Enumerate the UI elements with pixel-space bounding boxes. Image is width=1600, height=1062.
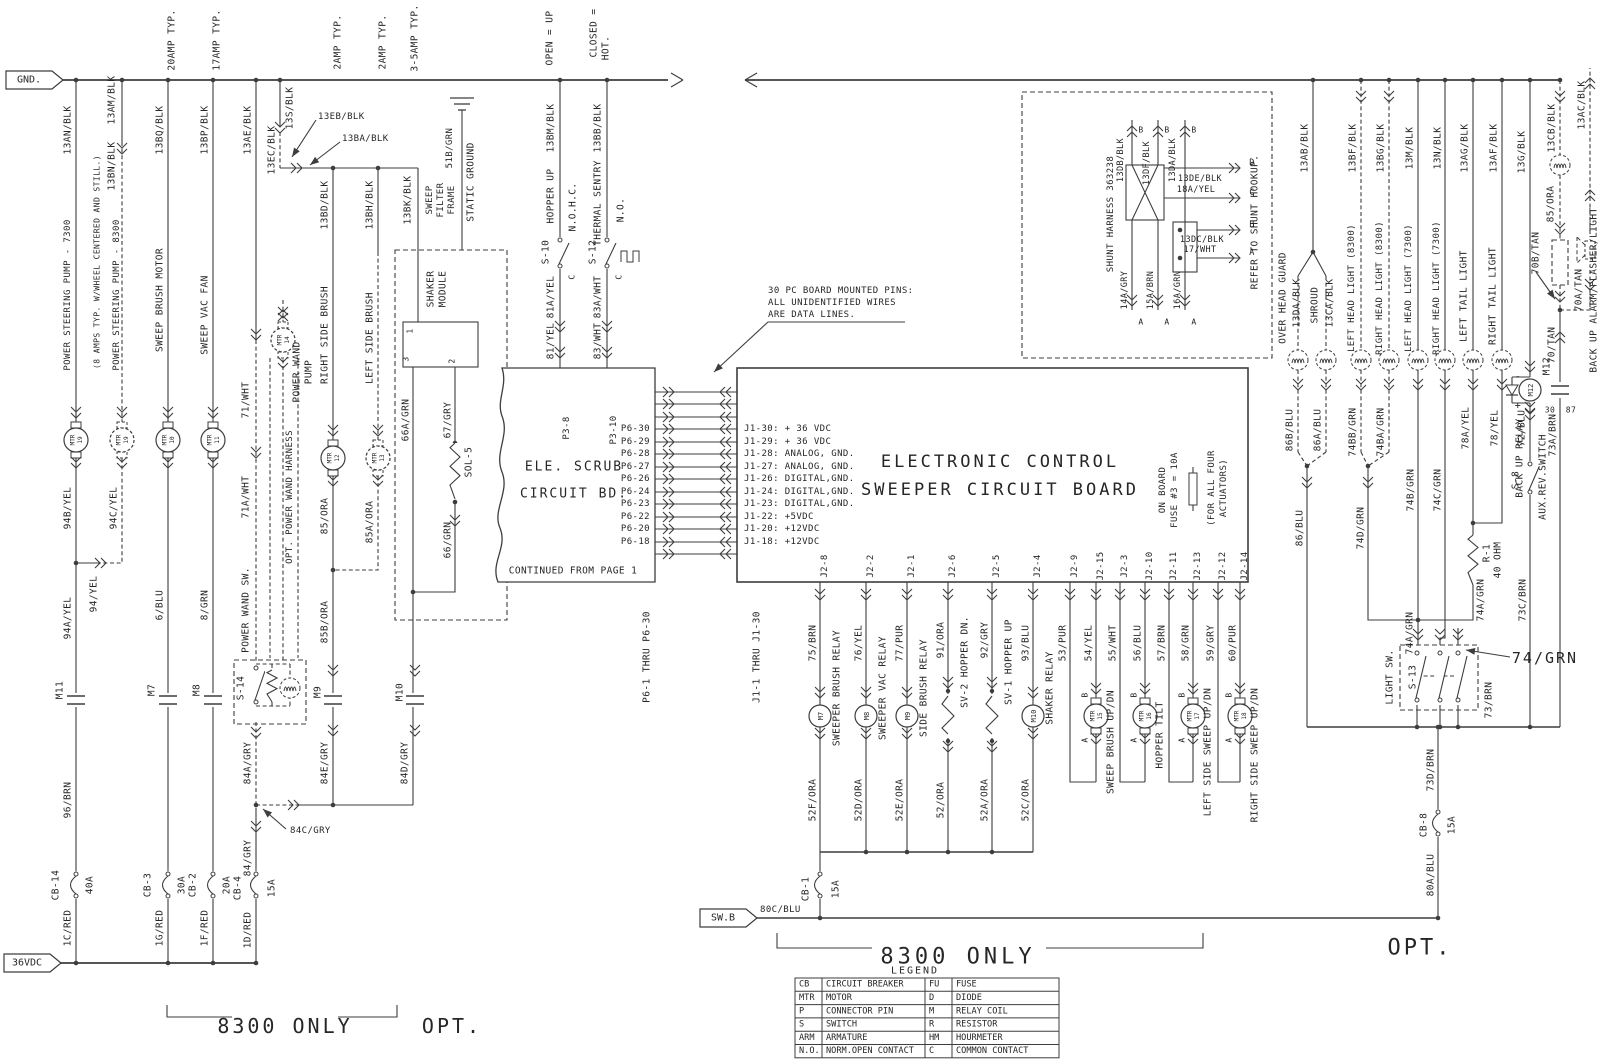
diagram-label: A	[1191, 318, 1196, 327]
diagram-label: SWEEP BRUSH MOTOR	[155, 248, 166, 352]
diagram-label: B	[1130, 692, 1139, 697]
diagram-label: 81/YEL	[546, 323, 557, 360]
diagram-label: POWER STEERING PUMP - 8300	[112, 219, 122, 370]
diagram-label: 52F/ORA	[808, 779, 819, 822]
diagram-label: 13AC/BLK	[1577, 81, 1588, 130]
diagram-label: LEFT HEAD LIGHT (7300)	[1404, 224, 1414, 352]
diagram-label: 52E/ORA	[895, 779, 906, 822]
leader-arrow-icon	[310, 157, 319, 165]
bus-arrow-icon	[671, 73, 683, 80]
diagram-label: 13AB/BLK	[1300, 124, 1311, 173]
legend-cell: MTR	[799, 993, 815, 1003]
diagram-label: 76/YEL	[854, 625, 865, 662]
diagram-label: A	[1081, 737, 1090, 742]
legend-cell: CIRCUIT BREAKER	[826, 980, 904, 990]
diagram-label: 13CA/BLK	[1325, 279, 1336, 328]
diagram-label: CB-2	[188, 873, 199, 897]
diagram-label: 1C/RED	[63, 910, 74, 947]
motor-symbol	[163, 452, 173, 458]
diagram-label: HOT.	[601, 36, 612, 60]
diagram-label: 84D/GRY	[400, 742, 411, 785]
diagram-label: J2-13	[1193, 551, 1203, 580]
diagram-label: HOPPER UP	[546, 168, 557, 223]
motor-symbol-label: MTR	[1139, 710, 1146, 721]
diagram-label: 13BH/BLK	[365, 181, 376, 230]
legend-cell: C	[929, 1046, 934, 1056]
diagram-label: 8/GRN	[200, 590, 211, 621]
diagram-label: CIRCUIT BD.	[520, 487, 628, 502]
motor-symbol-label: 15	[1097, 712, 1104, 720]
diagram-label: J2-3	[1120, 554, 1130, 577]
diagram-label: 85A/ORA	[365, 501, 376, 544]
contact-symbol	[159, 693, 177, 707]
diagram-label: OVER HEAD GUARD	[1278, 252, 1289, 344]
junction-dot	[74, 561, 79, 566]
junction-dot	[1436, 916, 1441, 921]
diagram-label: 59/GRY	[1206, 625, 1217, 662]
motor-symbol-label: MTR	[207, 434, 214, 445]
diagram-label: 13AE/BLK	[243, 106, 254, 155]
diagram-label: 20AMP TYP.	[167, 9, 178, 70]
diagram-label: 2AMP TYP.	[333, 14, 344, 69]
diagram-label: 15A	[267, 879, 278, 897]
diagram-label: STATIC GROUND	[466, 142, 477, 222]
junction-dot	[605, 78, 610, 83]
diagram-label: RIGHT SIDE SWEEP UP/DN	[1250, 688, 1261, 823]
diagram-label: 66A/GRN	[401, 399, 412, 442]
diagram-label: 6/BLU	[155, 590, 166, 621]
motor-symbol	[117, 452, 127, 458]
diagram-label: J1-1 THRU J1-30	[752, 611, 763, 703]
motor-symbol-label: 11	[214, 436, 221, 444]
diagram-label: SHAKER	[426, 271, 437, 308]
diagram-label: 40A	[85, 876, 96, 894]
diagram-label: 15A	[1447, 816, 1458, 834]
diagram-label: SWEEP BRUSH UP/DN	[1106, 690, 1117, 794]
motor-symbol-label: 13	[379, 454, 386, 462]
diagram-label: J2-1	[907, 554, 917, 577]
diagram-label: SHROUD	[1310, 287, 1321, 324]
diagram-label: (FOR ALL FOUR	[1207, 450, 1217, 526]
diagram-label: 2	[448, 358, 457, 363]
junction-dot	[254, 961, 259, 966]
diagram-label: 13AG/BLK	[1460, 124, 1471, 173]
diagram-label: 85B/ORA	[320, 601, 331, 644]
diagram-label: 66/GRN	[443, 522, 454, 559]
diagram-label: RIGHT HEAD LIGHT (7300)	[1432, 221, 1442, 355]
junction-dot	[818, 916, 823, 921]
diagram-label: SWEEP VAC FAN	[200, 275, 211, 355]
legend-cell: ARM	[799, 1033, 815, 1043]
junction-dot	[905, 850, 910, 855]
diagram-label: P6-28	[621, 449, 650, 459]
diagram-label: 13DE/BLK	[1178, 174, 1223, 184]
diagram-label: J1-26: DIGITAL,GND.	[744, 474, 855, 484]
diagram-label: THERMAL SENTRY	[593, 160, 604, 246]
diagram-label: ACTUATORS)	[1219, 459, 1229, 517]
diagram-label: 8300 ONLY	[880, 945, 1035, 970]
diagram-label: SV-1 HOPPER UP	[1004, 619, 1015, 705]
diagram-label: J1-27: ANALOG, GND.	[744, 462, 855, 472]
diode-symbol	[1506, 385, 1518, 395]
diagram-label: OPEN = UP	[545, 10, 556, 65]
wire	[1046, 933, 1203, 948]
diagram-label: SV-2 HOPPER DN.	[960, 616, 971, 708]
diagram-label: 13BK/BLK	[403, 176, 414, 225]
motor-symbol-label: MTR	[327, 452, 334, 463]
diagram-label: POWER WAND SW.	[241, 567, 252, 653]
circuit-breaker-symbol	[74, 872, 78, 876]
motor-symbol	[1235, 698, 1245, 704]
motor-symbol-label: MTR	[1234, 710, 1241, 721]
circuit-breaker-symbol	[254, 872, 258, 876]
contact-symbol	[1551, 383, 1569, 397]
diagram-label: J2-10	[1145, 551, 1155, 580]
relay-coil-label: M8	[863, 712, 871, 720]
diagram-label: 80A/BLU	[1426, 854, 1437, 897]
motor-symbol-label: 14	[284, 336, 291, 344]
connector-chevron-icon	[1384, 97, 1394, 102]
diagram-label: J2-5	[992, 554, 1002, 577]
diagram-label: POWER WAND	[292, 341, 303, 402]
circuit-breaker-symbol	[818, 894, 822, 898]
diagram-label: 13N/BLK	[1433, 127, 1444, 170]
motor-symbol	[1188, 728, 1198, 734]
diagram-label: 86A/BLU	[1313, 409, 1324, 452]
junction-dot	[278, 78, 283, 83]
diagram-label: J1-24: DIGITAL,GND.	[744, 487, 855, 497]
switch-symbol	[605, 264, 609, 268]
relay-coil-label: M7	[817, 712, 825, 720]
diagram-label: 13DA/BLK	[1168, 137, 1178, 182]
wire	[1298, 252, 1313, 276]
diagram-label: -	[1515, 372, 1521, 383]
diagram-label: (8 AMPS TYP. W/WHEEL CENTERED AND STILL.…	[93, 155, 102, 369]
diagram-label: P3-10	[609, 415, 619, 444]
diagram-label: HOPPER TILT	[1155, 701, 1166, 768]
diagram-label: 83/WHT	[593, 323, 604, 360]
junction-dot	[376, 166, 381, 171]
contact-symbol	[324, 693, 342, 707]
diagram-label: J2-11	[1169, 551, 1179, 580]
diagram-label: J1-29: + 36 VDC	[744, 437, 831, 447]
wire	[777, 933, 872, 948]
net-flag-label: SW.B	[711, 913, 735, 924]
diagram-label: P6-23	[621, 499, 650, 509]
diagram-label: MODULE	[438, 271, 449, 308]
diagram-label: OPT. POWER WAND HARNESS	[285, 430, 295, 564]
diagram-label: R-1	[1482, 544, 1493, 562]
legend-cell: HM	[929, 1033, 939, 1043]
junction-dot	[1500, 78, 1505, 83]
diagram-label: P3-8	[562, 416, 572, 439]
diagram-label: 30	[1545, 406, 1555, 415]
motor-symbol	[278, 352, 288, 358]
circuit-breaker-symbol	[211, 894, 215, 898]
junction-dot	[1359, 78, 1364, 83]
diagram-label: P6-26	[621, 474, 650, 484]
junction-dot	[166, 961, 171, 966]
diagram-label: 78/YEL	[1490, 410, 1501, 447]
diagram-label: C	[615, 274, 624, 279]
diagram-label: PUMP	[304, 360, 315, 384]
connector-chevron-icon	[410, 665, 420, 670]
diagram-label: 17AMP TYP.	[212, 9, 223, 70]
diagram-label: CLOSED =	[589, 9, 600, 58]
diagram-label: 13EC/BLK	[267, 126, 278, 175]
diagram-label: 8300 ONLY	[217, 1014, 352, 1038]
diagram-label: CB-14	[51, 870, 62, 901]
net-flag-label: 36VDC	[12, 958, 42, 969]
motor-symbol-label: MTR	[162, 434, 169, 445]
diagram-label: C	[568, 274, 577, 279]
diagram-label: J2-9	[1070, 554, 1080, 577]
diagram-label: B	[1138, 126, 1143, 135]
diagram-label: 13BF/BLK	[1348, 124, 1359, 173]
diagram-label: 67/GRY	[443, 402, 454, 439]
motor-symbol-label: 17	[1194, 712, 1201, 720]
diagram-label: A	[1225, 737, 1234, 742]
junction-dot	[1416, 618, 1421, 623]
diagram-label: 52A/ORA	[980, 779, 991, 822]
legend-cell: N.O.	[799, 1046, 820, 1056]
diagram-label: SIDE BRUSH RELAY	[919, 639, 930, 737]
diagram-label: FRAME	[447, 185, 457, 214]
switch-symbol	[558, 264, 562, 268]
switch-symbol	[1456, 698, 1460, 702]
solenoid-symbol	[946, 739, 950, 743]
squarewave-icon	[621, 251, 639, 262]
diagram-label: FUSE #3 = 10A	[1170, 452, 1180, 528]
motor-symbol	[373, 470, 383, 476]
diagram-label: REFER TO SHUNT HOOKUP.	[1250, 155, 1261, 290]
diagram-label: 74A/GRN	[1405, 612, 1416, 655]
diagram-label: SWEEPER CIRCUIT BOARD	[861, 480, 1139, 500]
switch-symbol	[1415, 651, 1419, 655]
diagram-label: P6-20	[621, 524, 650, 534]
leader-arrow-icon	[292, 148, 300, 157]
diagram-label: 17/WHT	[1183, 245, 1216, 255]
diagram-label: M9	[313, 686, 324, 698]
contact-symbol	[204, 693, 222, 707]
junction-dot	[1366, 464, 1371, 469]
diagram-label: LIGHT SW.	[1385, 649, 1396, 704]
bus-arrow-icon	[745, 80, 757, 87]
diagram-label: OPT.	[1388, 936, 1453, 961]
diagram-label: CONTINUED FROM PAGE 1	[509, 566, 638, 577]
diagram-label: 13BG/BLK	[1376, 124, 1387, 173]
diagram-label: ON BOARD	[1158, 467, 1168, 514]
junction-dot	[120, 78, 125, 83]
diagram-label: 74D/GRN	[1356, 507, 1367, 550]
junction-dot	[331, 568, 336, 573]
switch-symbol	[1438, 698, 1442, 702]
wire	[714, 322, 905, 372]
diagram-label: 52/ORA	[936, 782, 947, 819]
connector-chevron-icon	[1356, 97, 1366, 102]
diagram-label: ELECTRONIC CONTROL	[881, 452, 1119, 472]
switch-symbol	[1438, 651, 1442, 655]
legend-cell: MOTOR	[826, 993, 853, 1003]
diagram-label: 74B/GRN	[1406, 469, 1417, 512]
wiring-diagram-svg: MTR19MTR19MTR10MTR11MTR14MTR12MTR13MTR15…	[0, 0, 1600, 1062]
diagram-label: A	[1164, 318, 1169, 327]
motor-symbol	[1235, 728, 1245, 734]
legend-cell: CONNECTOR PIN	[826, 1006, 893, 1016]
diagram-label: S-10	[541, 240, 552, 264]
junction-dot	[1558, 308, 1563, 313]
motor-symbol-label: 19	[123, 436, 130, 444]
diagram-label: 73C/BRN	[1518, 579, 1529, 622]
motor-symbol-label: 19	[77, 436, 84, 444]
wire	[1070, 582, 1096, 782]
solenoid-symbol	[990, 689, 994, 693]
legend-cell: NORM.OPEN CONTACT	[826, 1046, 914, 1056]
diagram-label: 55/WHT	[1108, 625, 1119, 662]
legend-cell: SWITCH	[826, 1020, 857, 1030]
diagram-label: 13BN/BLK	[107, 142, 118, 191]
diagram-label: BACK UP ALARM/FLASHER/LIGHT	[1589, 207, 1600, 372]
diagram-label: J2-2	[866, 554, 876, 577]
diagram-label: J2-4	[1033, 554, 1043, 577]
diagram-label: 30A	[177, 876, 188, 894]
motor-symbol-label: MTR	[1090, 710, 1097, 721]
diagram-label: S-14	[236, 676, 247, 700]
diagram-label: 13AM/BLK	[107, 76, 118, 125]
diagram-label: B	[1191, 126, 1196, 135]
schematic-box	[1022, 92, 1272, 358]
diagram-label: N.O.	[616, 198, 627, 222]
contact-symbol	[67, 693, 85, 707]
junction-dot	[254, 78, 259, 83]
junction-dot	[946, 850, 951, 855]
lamp-symbol	[1550, 155, 1570, 175]
diagram-label: 94B/YEL	[63, 487, 74, 530]
diagram-label: 91/ORA	[936, 622, 947, 659]
motor-symbol-label: MTR	[1187, 710, 1194, 721]
lamp-symbol	[1492, 350, 1512, 370]
diagram-label: J2-12	[1218, 551, 1228, 580]
motor-symbol	[71, 422, 81, 428]
junction-dot	[1305, 464, 1310, 469]
diagram-label: J1-30: + 36 VDC	[744, 424, 831, 434]
switch-symbol	[254, 666, 258, 670]
motor-symbol-label: MTR	[116, 434, 123, 445]
diagram-label: S-13	[1408, 665, 1419, 689]
circuit-breaker-symbol	[1436, 832, 1440, 836]
wire	[1120, 582, 1145, 782]
diagram-label: 13CB/BLK	[1547, 104, 1558, 153]
diagram-label: 1F/RED	[200, 910, 211, 947]
diagram-label: 13AF/BLK	[1489, 124, 1500, 173]
junction-dot	[1178, 256, 1183, 261]
motor-symbol-label: MTR	[372, 452, 379, 463]
backup-alarm-speaker-icon	[1577, 237, 1585, 245]
diagram-label: RIGHT TAIL LIGHT	[1488, 247, 1499, 345]
diagram-label: 3-5AMP TYP.	[410, 4, 421, 71]
diagram-label: +	[1515, 401, 1521, 412]
diagram-label: S-12	[588, 240, 599, 264]
circuit-breaker-symbol	[211, 872, 215, 876]
legend-cell: COMMON CONTACT	[956, 1046, 1028, 1056]
diagram-label: N.O.H.C.	[568, 183, 579, 232]
diagram-label: 70B/TAN	[1531, 232, 1542, 275]
junction-dot	[331, 803, 336, 808]
relay-coil-label: M9	[904, 712, 912, 720]
fuse-symbol	[1189, 473, 1197, 505]
junction-dot	[211, 78, 216, 83]
motor-symbol	[1091, 728, 1101, 734]
diagram-label: 54/YEL	[1084, 625, 1095, 662]
junction-dot	[1443, 78, 1448, 83]
motor-symbol-label: 18	[1241, 712, 1248, 720]
diagram-label: 71A/WHT	[241, 476, 252, 519]
motor-symbol-label: 10	[169, 436, 176, 444]
diagram-label: 52C/ORA	[1021, 779, 1032, 822]
junction-dot	[1528, 725, 1533, 730]
diagram-label: 56/BLU	[1133, 625, 1144, 662]
legend-cell: M	[929, 1006, 934, 1016]
diagram-label: 86/BLU	[1295, 510, 1306, 547]
switch-symbol	[1528, 490, 1532, 494]
motor-symbol	[373, 440, 383, 446]
diagram-label: 13BP/BLK	[200, 106, 211, 155]
wire	[1218, 582, 1240, 782]
connector-chevron-icon	[410, 731, 420, 736]
diagram-label: SHUNT HARNESS 363238	[1106, 156, 1116, 272]
diagram-label: LEFT SIDE BRUSH	[365, 292, 376, 384]
diagram-label: 84/GRY	[243, 840, 254, 877]
motor-symbol	[1188, 698, 1198, 704]
connector-chevron-icon	[1555, 97, 1565, 102]
diagram-label: J1-22: +5VDC	[744, 512, 814, 522]
solenoid-symbol	[990, 739, 994, 743]
bus-arrow-icon	[745, 73, 757, 80]
junction-dot	[1311, 78, 1316, 83]
wire	[1361, 452, 1368, 466]
diagram-label: 53/PUR	[1058, 625, 1069, 662]
diagram-label: 74A/GRN	[1476, 579, 1487, 622]
contact-symbol	[406, 693, 424, 707]
diagram-label: 77/PUR	[895, 625, 906, 662]
motor-symbol-label: 16	[1146, 712, 1153, 720]
diagram-label: 84A/GRY	[243, 742, 254, 785]
legend-cell: ARMATURE	[826, 1033, 867, 1043]
diagram-label: B	[1164, 126, 1169, 135]
diagram-label: 70/TAN	[1547, 327, 1558, 364]
diagram-label: POWER STEERING PUMP - 7300	[63, 219, 73, 370]
diagram-label: 18A/YEL	[1177, 185, 1216, 195]
diagram-label: P6-29	[621, 437, 650, 447]
motor-symbol	[208, 422, 218, 428]
bus-arrow-icon	[671, 80, 683, 87]
legend-cell: RELAY COIL	[956, 1006, 1008, 1016]
junction-dot	[558, 78, 563, 83]
diagram-label: M11	[55, 681, 66, 699]
diagram-label: 13M/BLK	[1405, 127, 1416, 170]
motor-symbol	[328, 440, 338, 446]
diagram-label: SWEEP	[425, 185, 435, 214]
diagram-label: 13BQ/BLK	[155, 106, 166, 155]
motor-symbol	[1091, 698, 1101, 704]
diagram-label: 86B/BLU	[1285, 409, 1296, 452]
diagram-label: P6-27	[621, 462, 650, 472]
diagram-label: LEFT TAIL LIGHT	[1459, 250, 1470, 342]
switch-symbol	[254, 700, 258, 704]
diagram-label: 13BA/BLK	[342, 134, 389, 144]
diagram-label: LEFT HEAD LIGHT (8300)	[1347, 224, 1357, 352]
diagram-label: M10	[395, 683, 406, 701]
